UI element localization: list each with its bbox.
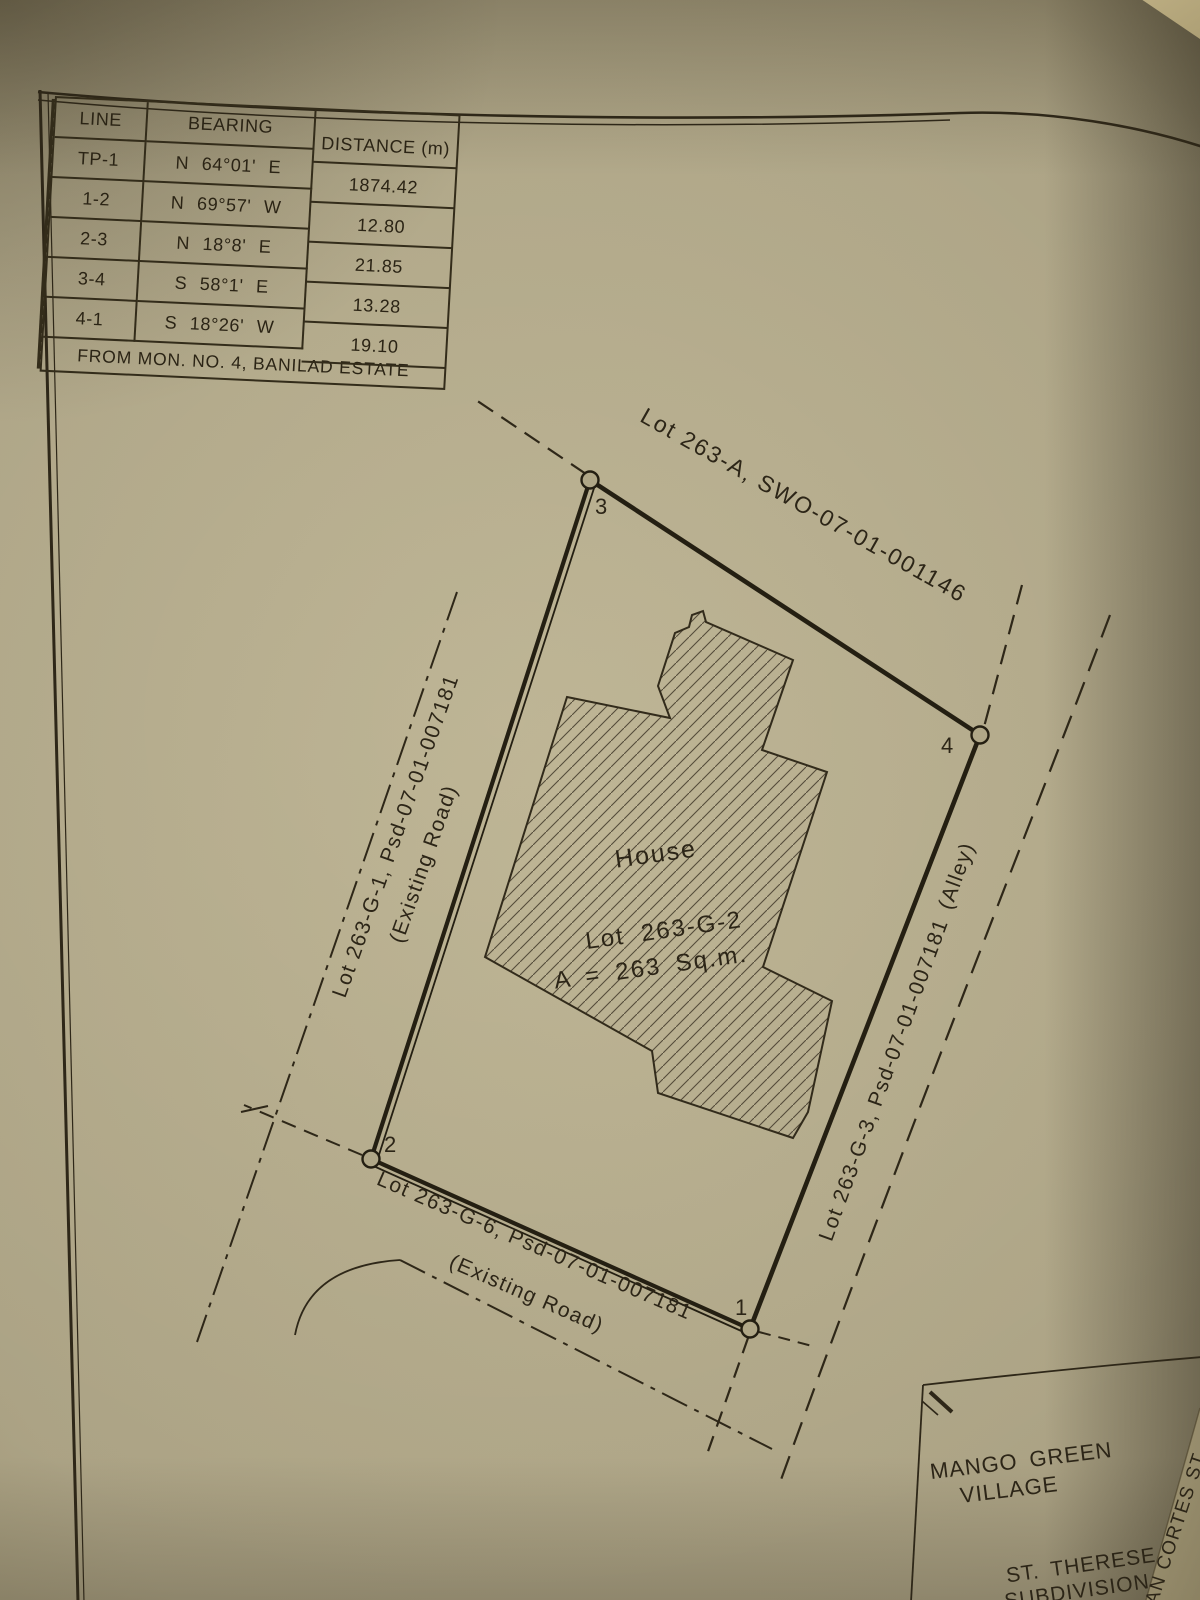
distance-value: 19.10	[350, 334, 399, 357]
survey-plan-photo: 3 4 1 2 Lot 263-A, SWO-07-01-001146 Lot …	[0, 0, 1200, 1600]
corner-4-monument	[972, 727, 989, 744]
table-row: 2-3	[48, 218, 142, 262]
table-row: TP-1	[52, 138, 146, 182]
corner-3-label: 3	[595, 494, 607, 519]
table-row: 21.85	[308, 230, 452, 276]
corner-3-monument	[582, 472, 599, 489]
house-footprint	[485, 611, 832, 1138]
corner-4-label: 4	[941, 733, 953, 758]
east-lot-note: (Alley)	[934, 839, 980, 913]
corner-2-label: 2	[384, 1132, 396, 1157]
north-lot-label: Lot 263-A, SWO-07-01-001146	[636, 402, 971, 607]
table-header-distance: DISTANCE (m)	[314, 110, 458, 156]
technical-description-table: LINE BEARING DISTANCE (m) TP-1 N 64°01' …	[40, 96, 461, 390]
table-row: 19.10	[303, 310, 447, 356]
table-row: 1874.42	[312, 150, 456, 196]
table-header-line: LINE	[55, 98, 149, 142]
table-row: 4-1	[43, 298, 137, 342]
table-row: 12.80	[310, 190, 454, 236]
table-row: 13.28	[305, 270, 449, 316]
table-row: S 18°26' W	[135, 302, 305, 350]
corner-2-monument	[363, 1151, 380, 1168]
table-row: 3-4	[46, 258, 140, 302]
table-row: 1-2	[50, 178, 144, 222]
east-lot-label: Lot 263-G-3, Psd-07-01-007181	[815, 916, 953, 1244]
corner-1-monument	[742, 1321, 759, 1338]
corner-1-label: 1	[735, 1295, 747, 1320]
